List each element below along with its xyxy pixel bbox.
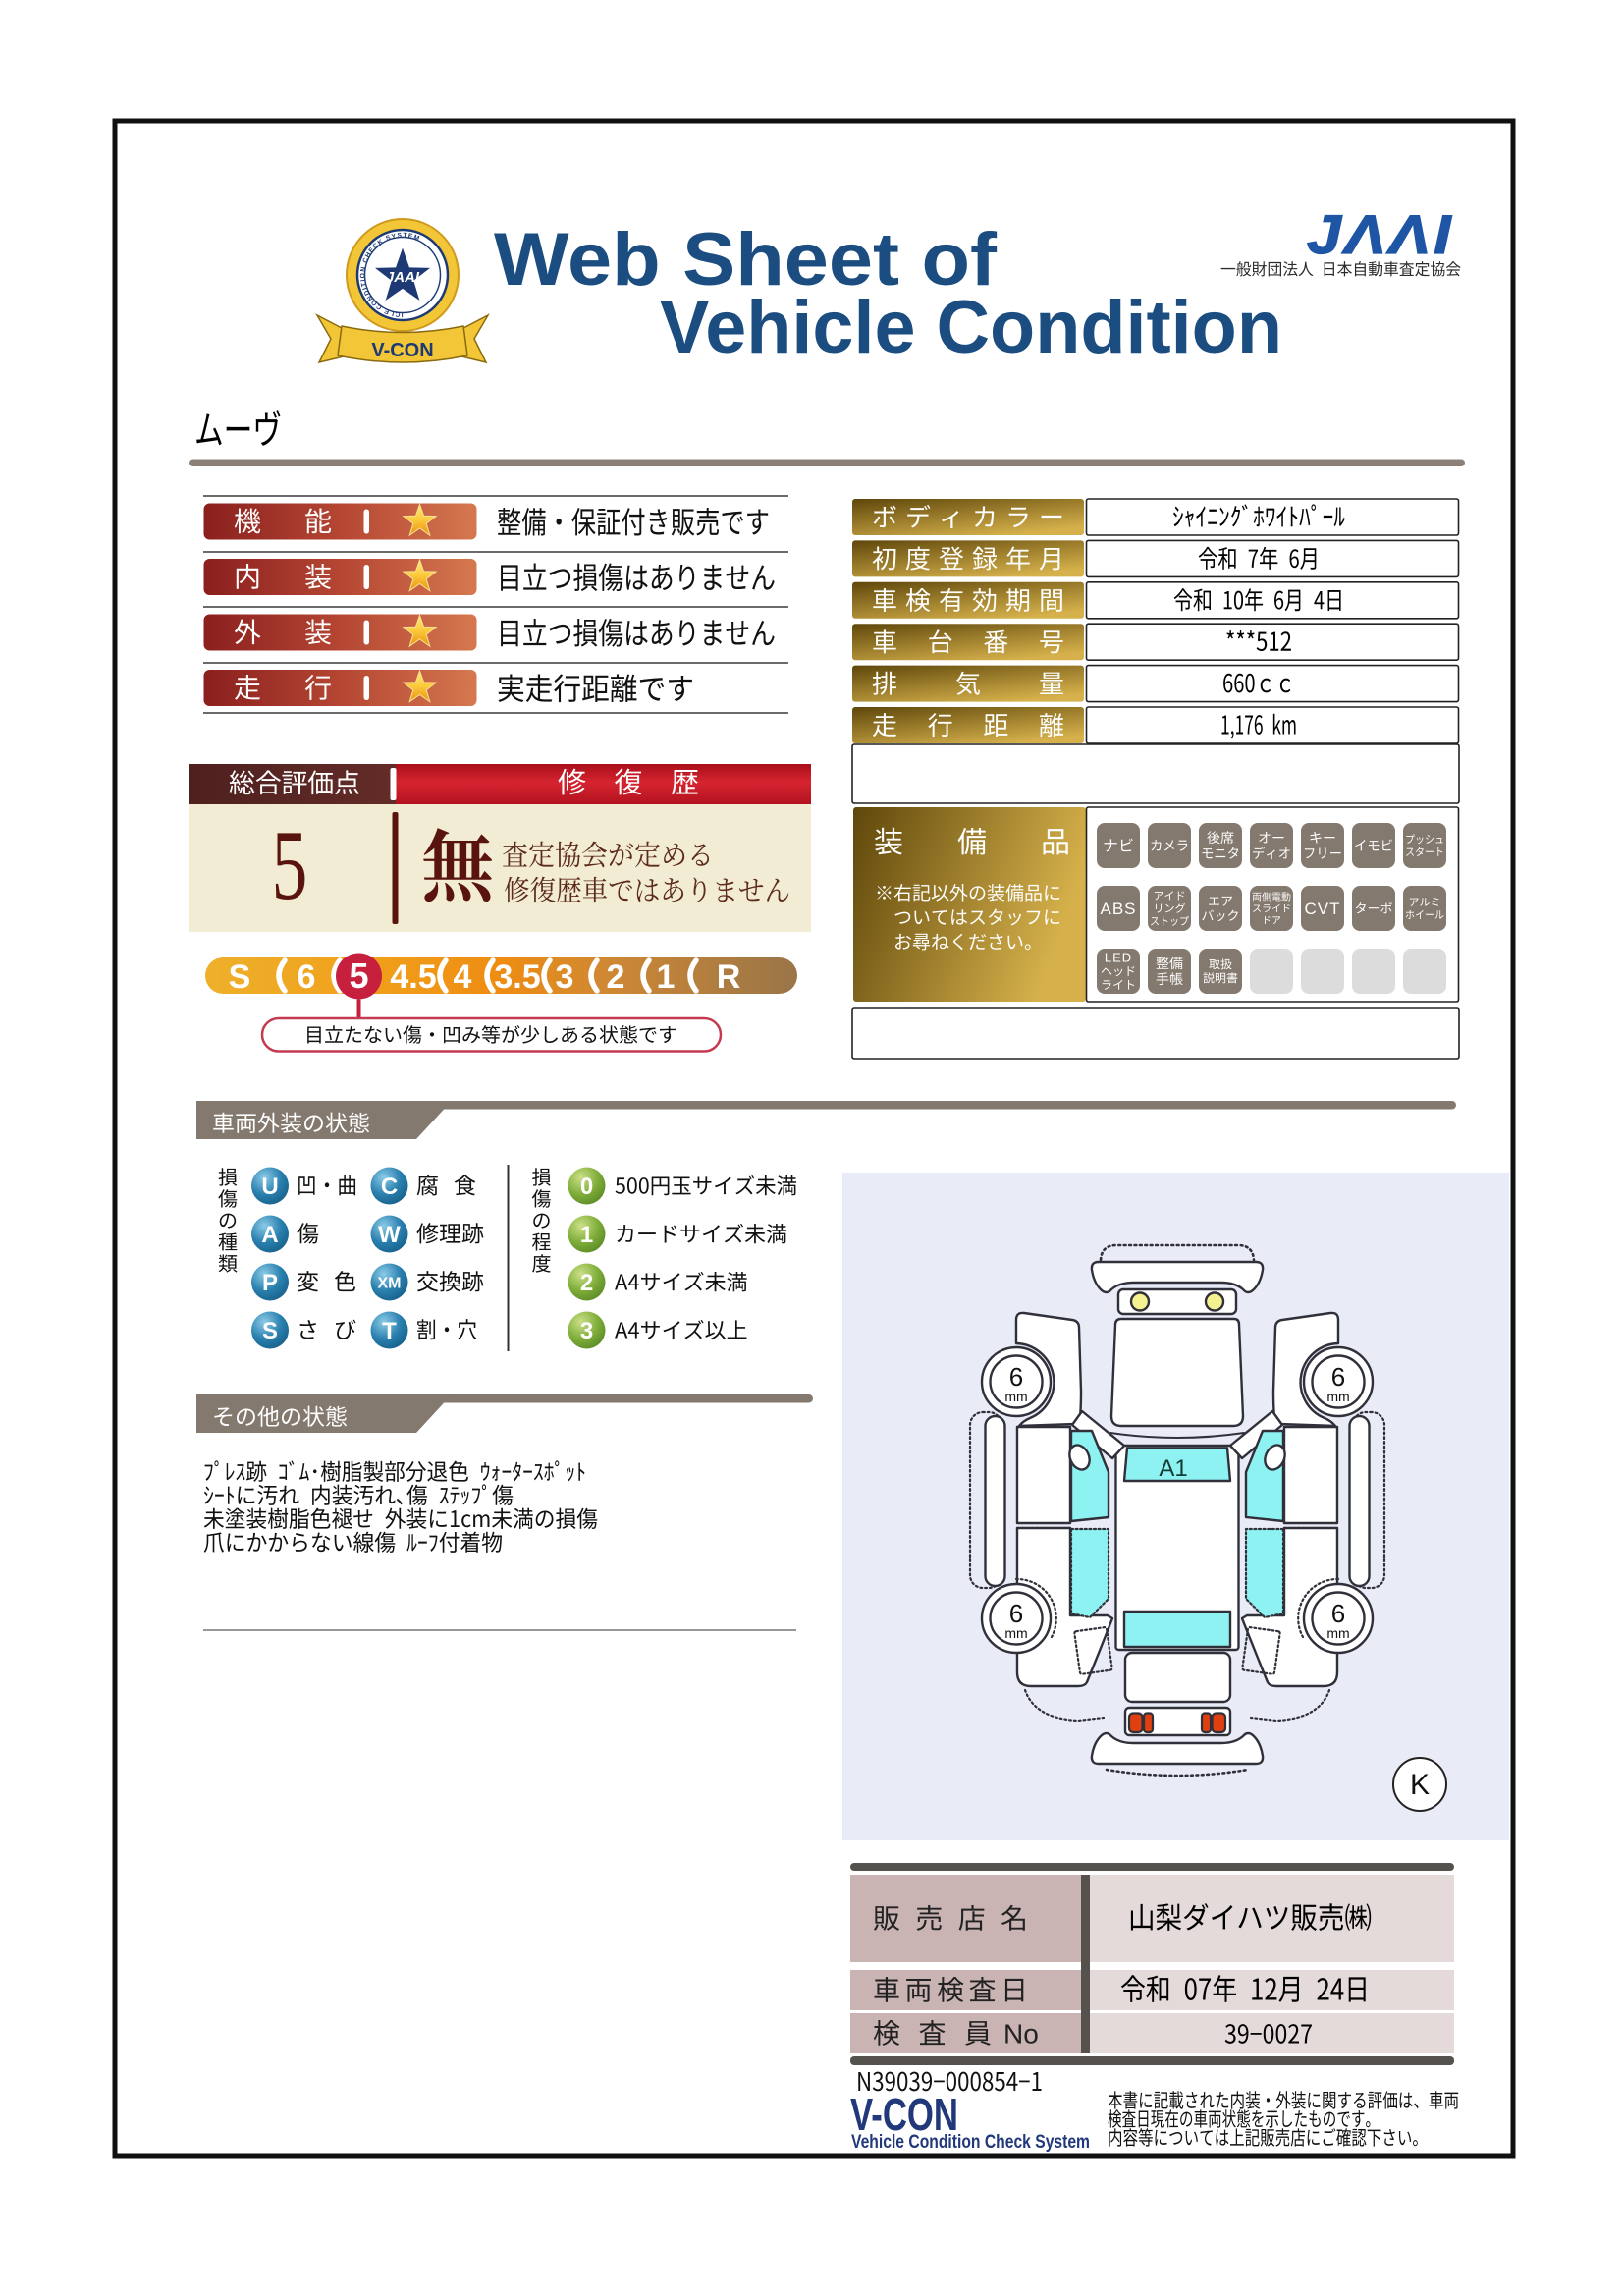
svg-text:6: 6 xyxy=(1009,1362,1023,1392)
svg-text:JAAI: JAAI xyxy=(386,269,420,286)
svg-text:Vehicle Condition: Vehicle Condition xyxy=(660,286,1282,369)
svg-text:Vehicle Condition Check System: Vehicle Condition Check System xyxy=(851,2132,1090,2153)
svg-text:2: 2 xyxy=(607,958,625,996)
svg-text:ABS: ABS xyxy=(1100,900,1136,918)
svg-text:5: 5 xyxy=(349,956,368,996)
svg-text:0: 0 xyxy=(580,1174,593,1200)
svg-text:1: 1 xyxy=(657,958,676,996)
svg-text:5: 5 xyxy=(272,810,308,920)
svg-text:K: K xyxy=(1410,1769,1430,1801)
svg-text:V-CON: V-CON xyxy=(371,340,433,361)
svg-text:U: U xyxy=(261,1174,278,1200)
svg-text:4: 4 xyxy=(454,958,472,996)
svg-text:4.5: 4.5 xyxy=(390,958,436,996)
svg-text:C: C xyxy=(381,1174,398,1200)
svg-text:R: R xyxy=(717,958,741,996)
svg-text:2: 2 xyxy=(580,1270,593,1296)
svg-text:mm: mm xyxy=(1326,1625,1349,1641)
svg-text:6: 6 xyxy=(1009,1599,1023,1628)
svg-text:P: P xyxy=(262,1270,278,1296)
svg-text:T: T xyxy=(382,1318,397,1344)
svg-text:3: 3 xyxy=(580,1318,593,1344)
svg-text:mm: mm xyxy=(1326,1389,1349,1404)
svg-text:6: 6 xyxy=(1331,1362,1345,1392)
svg-text:XM: XM xyxy=(378,1275,402,1291)
svg-text:W: W xyxy=(378,1222,401,1248)
svg-text:3.5: 3.5 xyxy=(494,958,540,996)
svg-text:LED: LED xyxy=(1105,950,1132,964)
svg-text:A1: A1 xyxy=(1159,1455,1187,1482)
svg-text:3: 3 xyxy=(556,958,574,996)
svg-text:JΛΛI: JΛΛI xyxy=(1307,203,1454,265)
svg-text:No: No xyxy=(1003,2019,1039,2050)
svg-text:6: 6 xyxy=(1331,1599,1345,1628)
svg-text:mm: mm xyxy=(1004,1389,1027,1404)
svg-text:S: S xyxy=(262,1318,278,1344)
svg-text:A: A xyxy=(261,1222,278,1248)
svg-text:6: 6 xyxy=(298,958,316,996)
svg-text:mm: mm xyxy=(1004,1625,1027,1641)
svg-text:S: S xyxy=(229,958,251,996)
svg-text:CVT: CVT xyxy=(1305,900,1341,918)
svg-text:1: 1 xyxy=(580,1222,593,1248)
